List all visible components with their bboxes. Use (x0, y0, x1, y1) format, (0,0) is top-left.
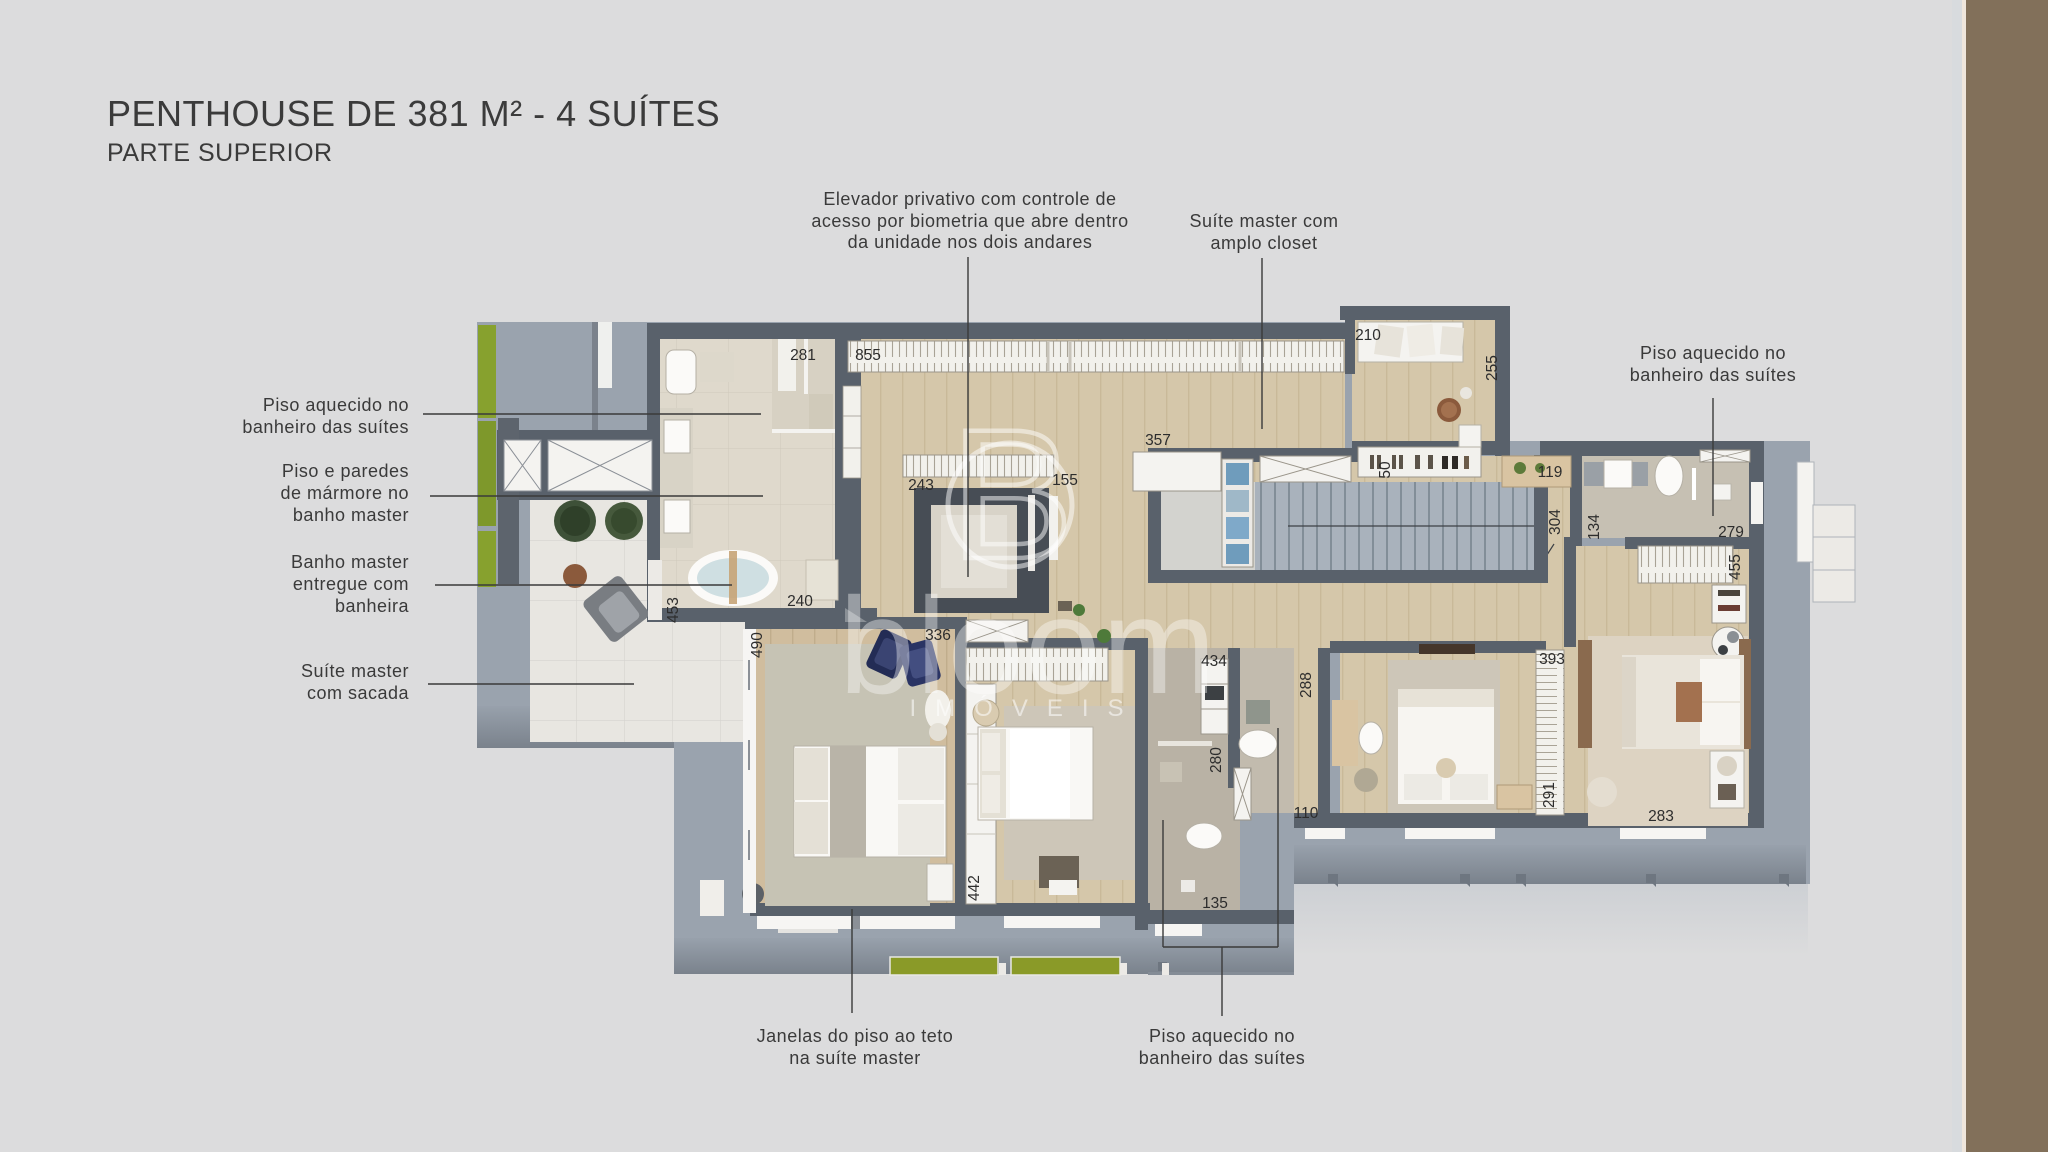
svg-text:255: 255 (1484, 355, 1501, 381)
svg-text:Piso aquecido no: Piso aquecido no (1149, 1026, 1295, 1046)
svg-text:135: 135 (1202, 895, 1228, 912)
svg-text:de mármore no: de mármore no (280, 483, 409, 503)
svg-text:entregue com: entregue com (293, 574, 409, 594)
svg-text:PENTHOUSE DE 381 M² - 4 SUÍTES: PENTHOUSE DE 381 M² - 4 SUÍTES (107, 93, 720, 134)
svg-text:280: 280 (1208, 747, 1225, 773)
svg-text:855: 855 (855, 347, 881, 364)
svg-text:119: 119 (1538, 464, 1563, 481)
svg-text:Piso aquecido no: Piso aquecido no (263, 395, 409, 415)
svg-text:434: 434 (1201, 653, 1227, 670)
svg-text:455: 455 (1727, 554, 1744, 580)
svg-text:281: 281 (790, 347, 816, 364)
svg-text:Piso e paredes: Piso e paredes (282, 461, 409, 481)
svg-text:com sacada: com sacada (307, 683, 410, 703)
svg-text:banho master: banho master (293, 505, 409, 525)
svg-text:Janelas do piso ao teto: Janelas do piso ao teto (757, 1026, 954, 1046)
svg-text:490: 490 (749, 632, 766, 658)
svg-text:banheiro das suítes: banheiro das suítes (1630, 365, 1797, 385)
svg-text:110: 110 (1294, 805, 1319, 822)
svg-text:Suíte master: Suíte master (301, 661, 409, 681)
svg-text:banheira: banheira (335, 596, 410, 616)
svg-text:banheiro das suítes: banheiro das suítes (1139, 1048, 1306, 1068)
svg-text:357: 357 (1145, 432, 1171, 449)
svg-text:283: 283 (1648, 808, 1674, 825)
svg-text:na suíte master: na suíte master (789, 1048, 921, 1068)
svg-text:210: 210 (1355, 327, 1381, 344)
svg-text:240: 240 (787, 593, 813, 610)
svg-text:IMÓVEIS: IMÓVEIS (909, 695, 1142, 722)
svg-text:304: 304 (1547, 509, 1564, 535)
svg-text:288: 288 (1298, 672, 1315, 698)
svg-text:50: 50 (1377, 461, 1394, 479)
svg-text:Elevador privativo com control: Elevador privativo com controle de (823, 189, 1116, 209)
svg-text:Suíte master com: Suíte master com (1189, 211, 1338, 231)
svg-text:279: 279 (1718, 524, 1744, 541)
svg-text:acesso por biometria que abre: acesso por biometria que abre dentro (811, 211, 1128, 231)
svg-text:Piso aquecido no: Piso aquecido no (1640, 343, 1786, 363)
svg-text:453: 453 (665, 597, 682, 623)
svg-text:155: 155 (1052, 472, 1078, 489)
svg-text:Banho master: Banho master (291, 552, 409, 572)
svg-text:amplo closet: amplo closet (1210, 233, 1317, 253)
svg-text:336: 336 (925, 627, 951, 644)
svg-text:442: 442 (966, 875, 983, 901)
svg-text:134: 134 (1586, 514, 1603, 540)
svg-text:banheiro das suítes: banheiro das suítes (242, 417, 409, 437)
svg-text:291: 291 (1541, 782, 1558, 808)
svg-text:PARTE SUPERIOR: PARTE SUPERIOR (107, 139, 333, 167)
svg-text:da unidade nos dois andares: da unidade nos dois andares (848, 232, 1093, 252)
svg-text:393: 393 (1539, 651, 1565, 668)
svg-text:243: 243 (908, 477, 934, 494)
svg-text:B: B (950, 392, 1073, 598)
